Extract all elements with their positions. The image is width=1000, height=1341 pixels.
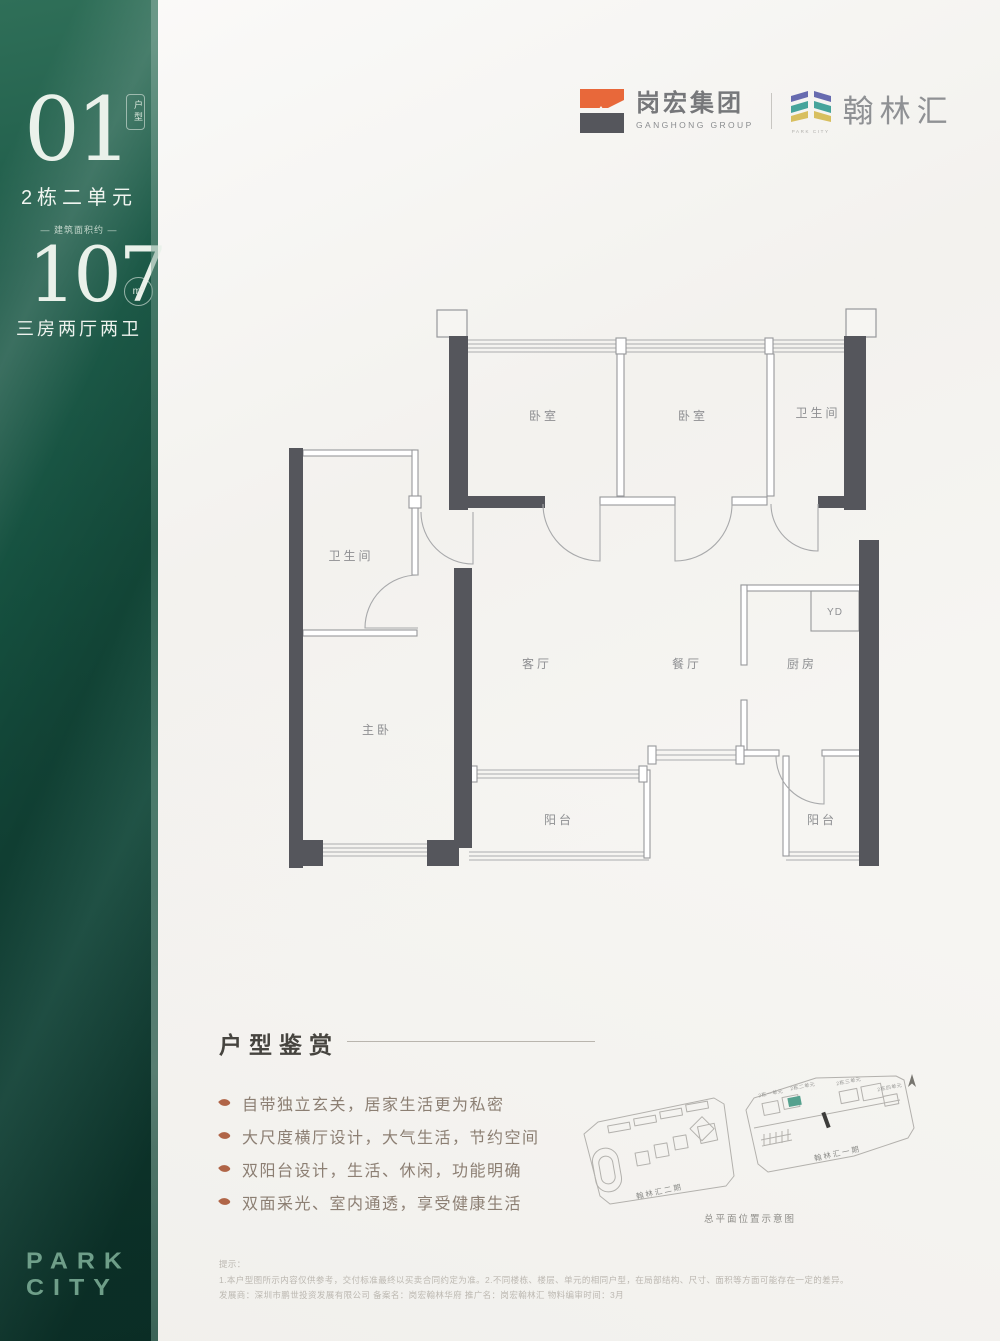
highlight-item: 大尺度横厅设计，大气生活，节约空间 [220, 1119, 540, 1152]
park-city-brand: PARK CITY [26, 1248, 131, 1301]
layout-text: 三房两厅两卫 [0, 315, 158, 341]
highlight-text: 大尺度横厅设计，大气生活，节约空间 [242, 1124, 540, 1148]
hanlinhui-logo-block: PARK CITY [789, 89, 833, 134]
unit-label-1: 2栋一单元 [758, 1088, 784, 1100]
highlight-item: 双阳台设计，生活、休闲，功能明确 [220, 1152, 540, 1185]
highlight-item: 自带独立玄关，居家生活更为私密 [220, 1086, 540, 1119]
header-logos: 岗宏集团 GANGHONG GROUP PARK CITY 翰林汇 [578, 84, 954, 138]
brand-line-2: CITY [26, 1274, 131, 1300]
room-label-bathroom-left: 卫生间 [328, 549, 373, 563]
highlight-text: 双面采光、室内通透，享受健康生活 [242, 1190, 522, 1214]
room-labels: 卧室 卧室 卫生间 卫生间 主卧 客厅 餐厅 厨房 YD 阳台 阳台 [328, 406, 842, 827]
room-label-bedroom-2: 卧室 [678, 408, 708, 423]
fine-print: 提示： 1.本户型图所示内容仅供参考，交付标准最终以买卖合同约定为准。2.不同楼… [219, 1257, 869, 1304]
room-label-dining-room: 餐厅 [672, 656, 702, 671]
highlights-rule [347, 1041, 595, 1042]
room-label-balcony-south: 阳台 [544, 812, 574, 827]
phase1-label: 翰林汇一期 [813, 1143, 862, 1163]
area-block: 107 m² [28, 237, 158, 313]
leaf-bullet-icon [218, 1129, 231, 1142]
fine-print-line2: 发展商：深圳市鹏世投资发展有限公司 备案名：岗宏翰林华府 推广名：岗宏翰林汇 物… [219, 1288, 869, 1304]
room-label-bedroom-1: 卧室 [529, 408, 559, 423]
floorplan-drawing: 卧室 卧室 卫生间 卫生间 主卧 客厅 餐厅 厨房 YD 阳台 阳台 [281, 300, 887, 888]
siteplan-map: 翰林汇二期 2栋一单元 2栋二单元 2栋三单元 2栋四单元 翰林汇一期 总平面位… [578, 1068, 930, 1232]
interior-walls [303, 338, 861, 858]
room-label-yd: YD [827, 607, 843, 618]
brand-line-1: PARK [26, 1248, 131, 1274]
ganghong-logo-icon [578, 87, 626, 135]
room-label-kitchen: 厨房 [787, 656, 817, 671]
developer-name: 岗宏集团 [636, 92, 754, 116]
unit-number-block: 01 户型 [24, 86, 128, 174]
floorplan-poster: 01 户型 2栋二单元 — 建筑面积约 — 107 m² 三房两厅两卫 PARK… [0, 0, 1000, 1341]
developer-name-en: GANGHONG GROUP [636, 120, 754, 130]
siteplan-caption: 总平面位置示意图 [704, 1213, 796, 1225]
leaf-bullet-icon [218, 1195, 231, 1208]
highlight-item: 双面采光、室内通透，享受健康生活 [220, 1185, 540, 1218]
unit-type-badge: 户型 [126, 94, 145, 130]
highlight-text: 自带独立玄关，居家生活更为私密 [242, 1091, 505, 1115]
room-label-master-bedroom: 主卧 [362, 723, 392, 737]
north-arrow-icon [908, 1074, 916, 1087]
area-value: 107 [28, 230, 164, 319]
leaf-bullet-icon [218, 1162, 231, 1175]
windows [323, 340, 859, 860]
room-label-bathroom-top: 卫生间 [795, 406, 840, 420]
highlights-list: 自带独立玄关，居家生活更为私密 大尺度横厅设计，大气生活，节约空间 双阳台设计，… [220, 1086, 540, 1218]
project-name-en: PARK CITY [792, 129, 830, 134]
tower-marker [821, 1112, 830, 1128]
highlight-text: 双阳台设计，生活、休闲，功能明确 [242, 1157, 522, 1181]
door-arcs [365, 504, 824, 804]
project-name: 翰林汇 [843, 96, 954, 127]
developer-text-block: 岗宏集团 GANGHONG GROUP [636, 92, 754, 130]
room-label-balcony-east: 阳台 [807, 812, 837, 827]
fine-print-title: 提示： [219, 1257, 869, 1273]
unit-name: 2栋二单元 [0, 181, 158, 210]
room-label-living-room: 客厅 [522, 656, 552, 671]
logo-divider [771, 93, 772, 129]
area-unit-circle: m² [124, 277, 153, 306]
highlights-title: 户型鉴赏 [219, 1026, 339, 1060]
sidebar: 01 户型 2栋二单元 — 建筑面积约 — 107 m² 三房两厅两卫 PARK… [0, 0, 158, 1341]
unit-number: 01 [24, 78, 128, 181]
phase2-label: 翰林汇二期 [635, 1181, 684, 1201]
roof-shafts [437, 309, 876, 337]
unit-labels: 2栋一单元 2栋二单元 2栋三单元 2栋四单元 [758, 1076, 903, 1100]
fine-print-line1: 1.本户型图所示内容仅供参考，交付标准最终以买卖合同约定为准。2.不同楼栋、楼层… [219, 1273, 869, 1289]
hanlinhui-logo-icon [789, 89, 833, 127]
leaf-bullet-icon [218, 1096, 231, 1109]
structural-walls [289, 336, 879, 868]
